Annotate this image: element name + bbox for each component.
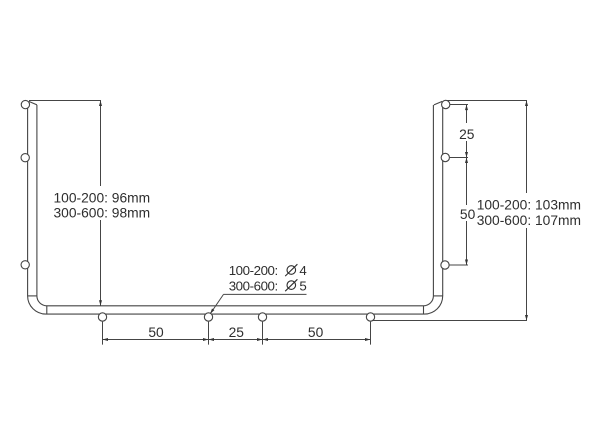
svg-text:300-600:: 300-600: — [229, 278, 279, 293]
svg-text:25: 25 — [229, 325, 245, 340]
svg-text:50: 50 — [308, 325, 324, 340]
svg-text:25: 25 — [459, 127, 475, 142]
svg-text:4: 4 — [299, 263, 306, 278]
svg-text:100-200: 96mm: 100-200: 96mm — [54, 191, 151, 206]
svg-text:50: 50 — [460, 207, 476, 222]
svg-text:300-600: 98mm: 300-600: 98mm — [54, 206, 151, 221]
svg-text:5: 5 — [299, 278, 306, 293]
svg-text:100-200:: 100-200: — [229, 263, 279, 278]
svg-text:300-600: 107mm: 300-600: 107mm — [477, 213, 581, 228]
svg-text:100-200: 103mm: 100-200: 103mm — [477, 197, 581, 212]
svg-text:50: 50 — [148, 325, 164, 340]
